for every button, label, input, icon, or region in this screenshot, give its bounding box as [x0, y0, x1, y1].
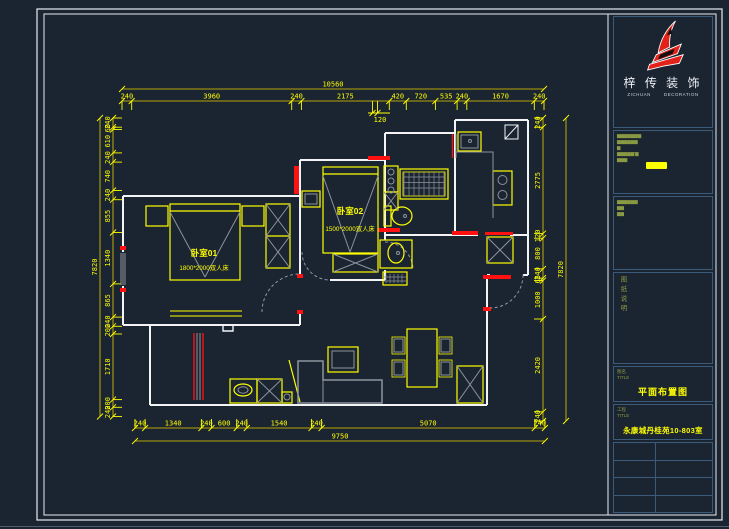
svg-text:120: 120 [374, 116, 387, 124]
job-title-box: 工程 TITLE 永康城丹桂苑10-803室 [613, 404, 713, 440]
svg-text:1340: 1340 [104, 250, 112, 267]
svg-text:2420: 2420 [534, 357, 542, 374]
svg-text:240: 240 [534, 410, 542, 423]
svg-text:1710: 1710 [104, 358, 112, 375]
company-name-en: ZICHUAN DECORATION [627, 92, 698, 97]
company-logo-box: 梓 传 装 饰 ZICHUAN DECORATION [613, 16, 713, 128]
svg-text:60: 60 [104, 124, 112, 132]
svg-text:7820: 7820 [91, 259, 99, 276]
svg-text:10560: 10560 [322, 81, 343, 89]
table-row [614, 477, 712, 495]
svg-text:7820: 7820 [557, 261, 565, 278]
screen-edge-line [0, 526, 729, 527]
svg-text:800: 800 [534, 247, 542, 260]
svg-text:120: 120 [534, 230, 542, 243]
svg-text:855: 855 [104, 210, 112, 223]
svg-text:600: 600 [218, 420, 231, 428]
svg-text:1000: 1000 [534, 291, 542, 308]
svg-text:2175: 2175 [337, 93, 354, 101]
svg-text:535: 535 [440, 93, 453, 101]
svg-text:9750: 9750 [332, 433, 349, 441]
table-row [614, 460, 712, 478]
stamp-highlight [646, 162, 667, 169]
dims-right: 7820 240 2775 120 800 240 65 1000 2420 2… [534, 116, 565, 422]
job-title-value: 永康城丹桂苑10-803室 [614, 425, 712, 436]
svg-text:240: 240 [290, 93, 303, 101]
svg-text:200: 200 [104, 324, 112, 337]
svg-text:240: 240 [534, 116, 542, 129]
title-block: 梓 传 装 饰 ZICHUAN DECORATION ▆▆▆▆▆▆▆ ▆▆▆▆▆… [610, 14, 716, 515]
walls [123, 120, 528, 405]
svg-text:1540: 1540 [271, 420, 288, 428]
drawing-title-box: 图名 TITLE 平面布置图 [613, 366, 713, 402]
svg-text:240: 240 [104, 189, 112, 202]
room-labels: 卧室01 1800*2000双人床 卧室02 1500*2000双人床 [179, 206, 375, 272]
contact-info-box: ▆▆▆▆▆▆ ▆▆ ▆▆ [613, 196, 713, 270]
bedroom2-label: 卧室02 [337, 206, 364, 216]
windows [121, 134, 457, 400]
notes-vertical-text: 图纸说明 [617, 276, 627, 314]
svg-text:65: 65 [534, 275, 542, 283]
table-row [614, 443, 712, 460]
svg-text:5070: 5070 [420, 420, 437, 428]
company-name: 梓 传 装 饰 [623, 74, 702, 91]
cad-sheet: 10560 240 3960 240 2175 420 720 535 240 … [0, 0, 729, 529]
svg-text:740: 740 [104, 170, 112, 183]
svg-text:1670: 1670 [492, 93, 509, 101]
svg-text:865: 865 [104, 294, 112, 307]
svg-text:3960: 3960 [203, 93, 220, 101]
bedroom2-bed-size: 1500*2000双人床 [325, 224, 375, 233]
contact-info-text: ▆▆▆▆▆▆ ▆▆ ▆▆ [617, 199, 638, 217]
drawing-title-label: 图名 TITLE [617, 369, 629, 380]
svg-text:1340: 1340 [165, 420, 182, 428]
svg-text:420: 420 [391, 93, 404, 101]
dims-left: 7820 240 60 610 240 740 240 855 1340 865… [91, 116, 112, 418]
bedroom1-bed-size: 1800*2000双人床 [179, 263, 229, 272]
svg-text:240: 240 [104, 151, 112, 164]
company-info-text: ▆▆▆▆▆▆▆ ▆▆▆▆▆▆ ▆ ▆▆▆▆▆'▆ ▆▆▆ [617, 133, 641, 163]
svg-text:240: 240 [121, 93, 134, 101]
job-title-label: 工程 TITLE [617, 407, 629, 418]
notes-box: 图纸说明 [613, 272, 713, 364]
svg-text:240: 240 [533, 93, 546, 101]
svg-text:240: 240 [200, 420, 213, 428]
signature-table [613, 442, 713, 513]
svg-text:610: 610 [104, 135, 112, 148]
dims-top: 10560 240 3960 240 2175 420 720 535 240 … [121, 81, 546, 125]
svg-text:240: 240 [235, 420, 248, 428]
drawing-title-value: 平面布置图 [614, 385, 712, 398]
bedroom1-label: 卧室01 [191, 248, 218, 258]
svg-text:240: 240 [310, 420, 323, 428]
table-row [614, 495, 712, 513]
company-info-box: ▆▆▆▆▆▆▆ ▆▆▆▆▆▆ ▆ ▆▆▆▆▆'▆ ▆▆▆ [613, 130, 713, 194]
svg-text:2775: 2775 [534, 172, 542, 189]
dims-bottom: 9750 240 1340 240 600 240 1540 240 5070 … [134, 420, 546, 441]
company-logo-sail-icon [637, 20, 689, 72]
svg-text:240: 240 [456, 93, 469, 101]
svg-text:720: 720 [414, 93, 427, 101]
svg-text:240: 240 [104, 406, 112, 419]
svg-text:240: 240 [134, 420, 147, 428]
